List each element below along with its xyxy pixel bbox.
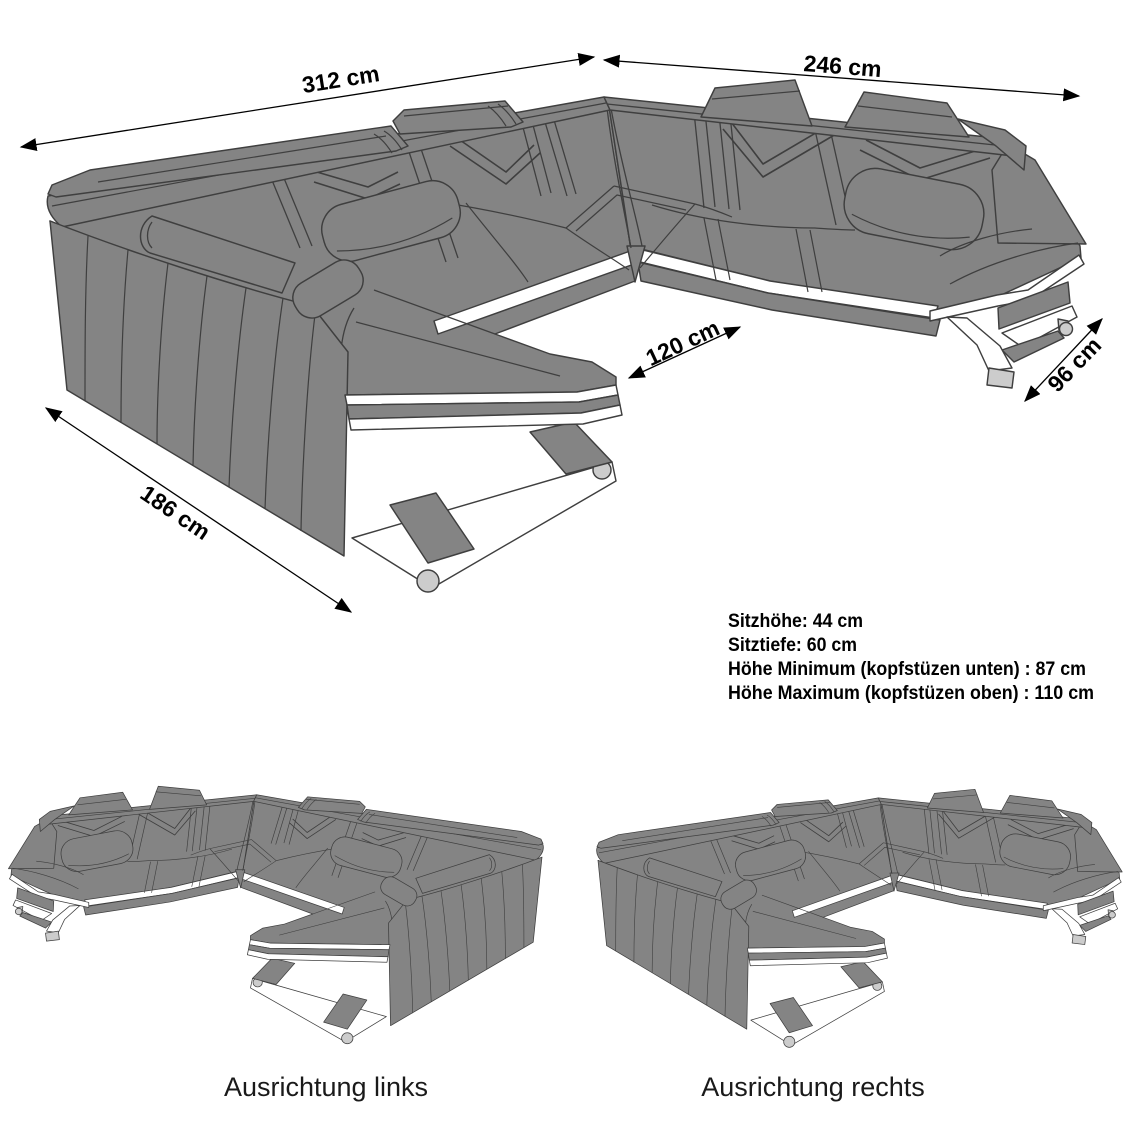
- svg-text:Höhe Minimum (kopfstüzen unten: Höhe Minimum (kopfstüzen unten) : 87 cm: [728, 658, 1086, 680]
- svg-text:Ausrichtung links: Ausrichtung links: [224, 1072, 428, 1102]
- svg-text:246 cm: 246 cm: [803, 50, 883, 82]
- svg-text:Sitztiefe: 60 cm: Sitztiefe: 60 cm: [728, 634, 857, 656]
- svg-text:120 cm: 120 cm: [642, 314, 724, 371]
- svg-text:Sitzhöhe: 44 cm: Sitzhöhe: 44 cm: [728, 610, 863, 632]
- svg-text:Höhe Maximum (kopfstüzen oben): Höhe Maximum (kopfstüzen oben) : 110 cm: [728, 682, 1094, 704]
- svg-text:Ausrichtung rechts: Ausrichtung rechts: [701, 1072, 925, 1102]
